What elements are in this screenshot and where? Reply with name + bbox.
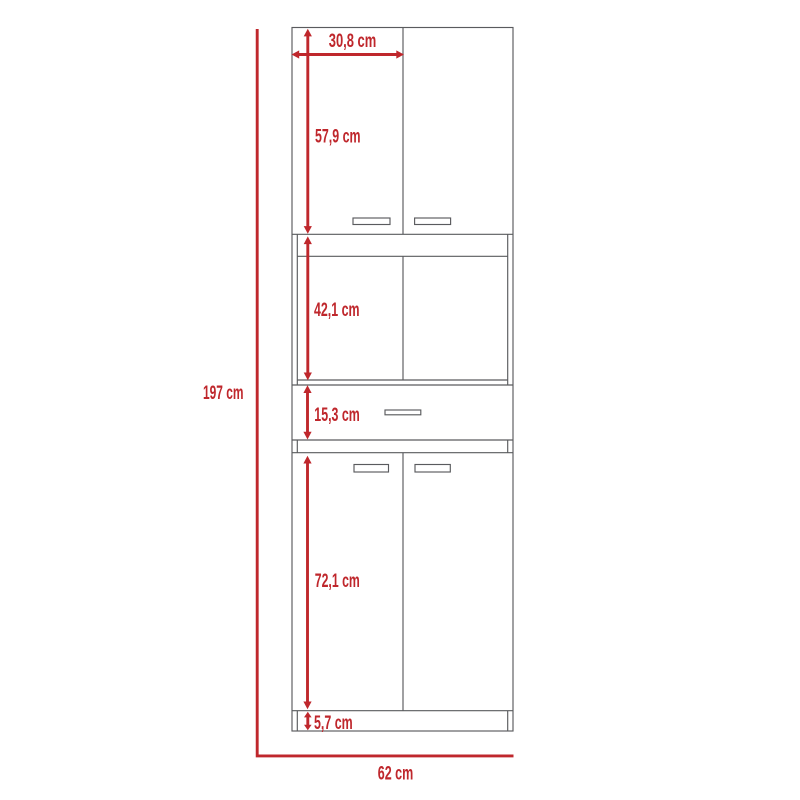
svg-text:72,1 cm: 72,1 cm: [315, 571, 360, 592]
svg-text:42,1 cm: 42,1 cm: [314, 300, 360, 321]
svg-text:57,9 cm: 57,9 cm: [315, 126, 361, 147]
svg-text:30,8 cm: 30,8 cm: [329, 31, 377, 52]
svg-text:5,7 cm: 5,7 cm: [314, 713, 353, 734]
svg-text:62 cm: 62 cm: [378, 763, 414, 784]
svg-text:197 cm: 197 cm: [203, 383, 244, 404]
svg-text:15,3 cm: 15,3 cm: [314, 405, 360, 426]
